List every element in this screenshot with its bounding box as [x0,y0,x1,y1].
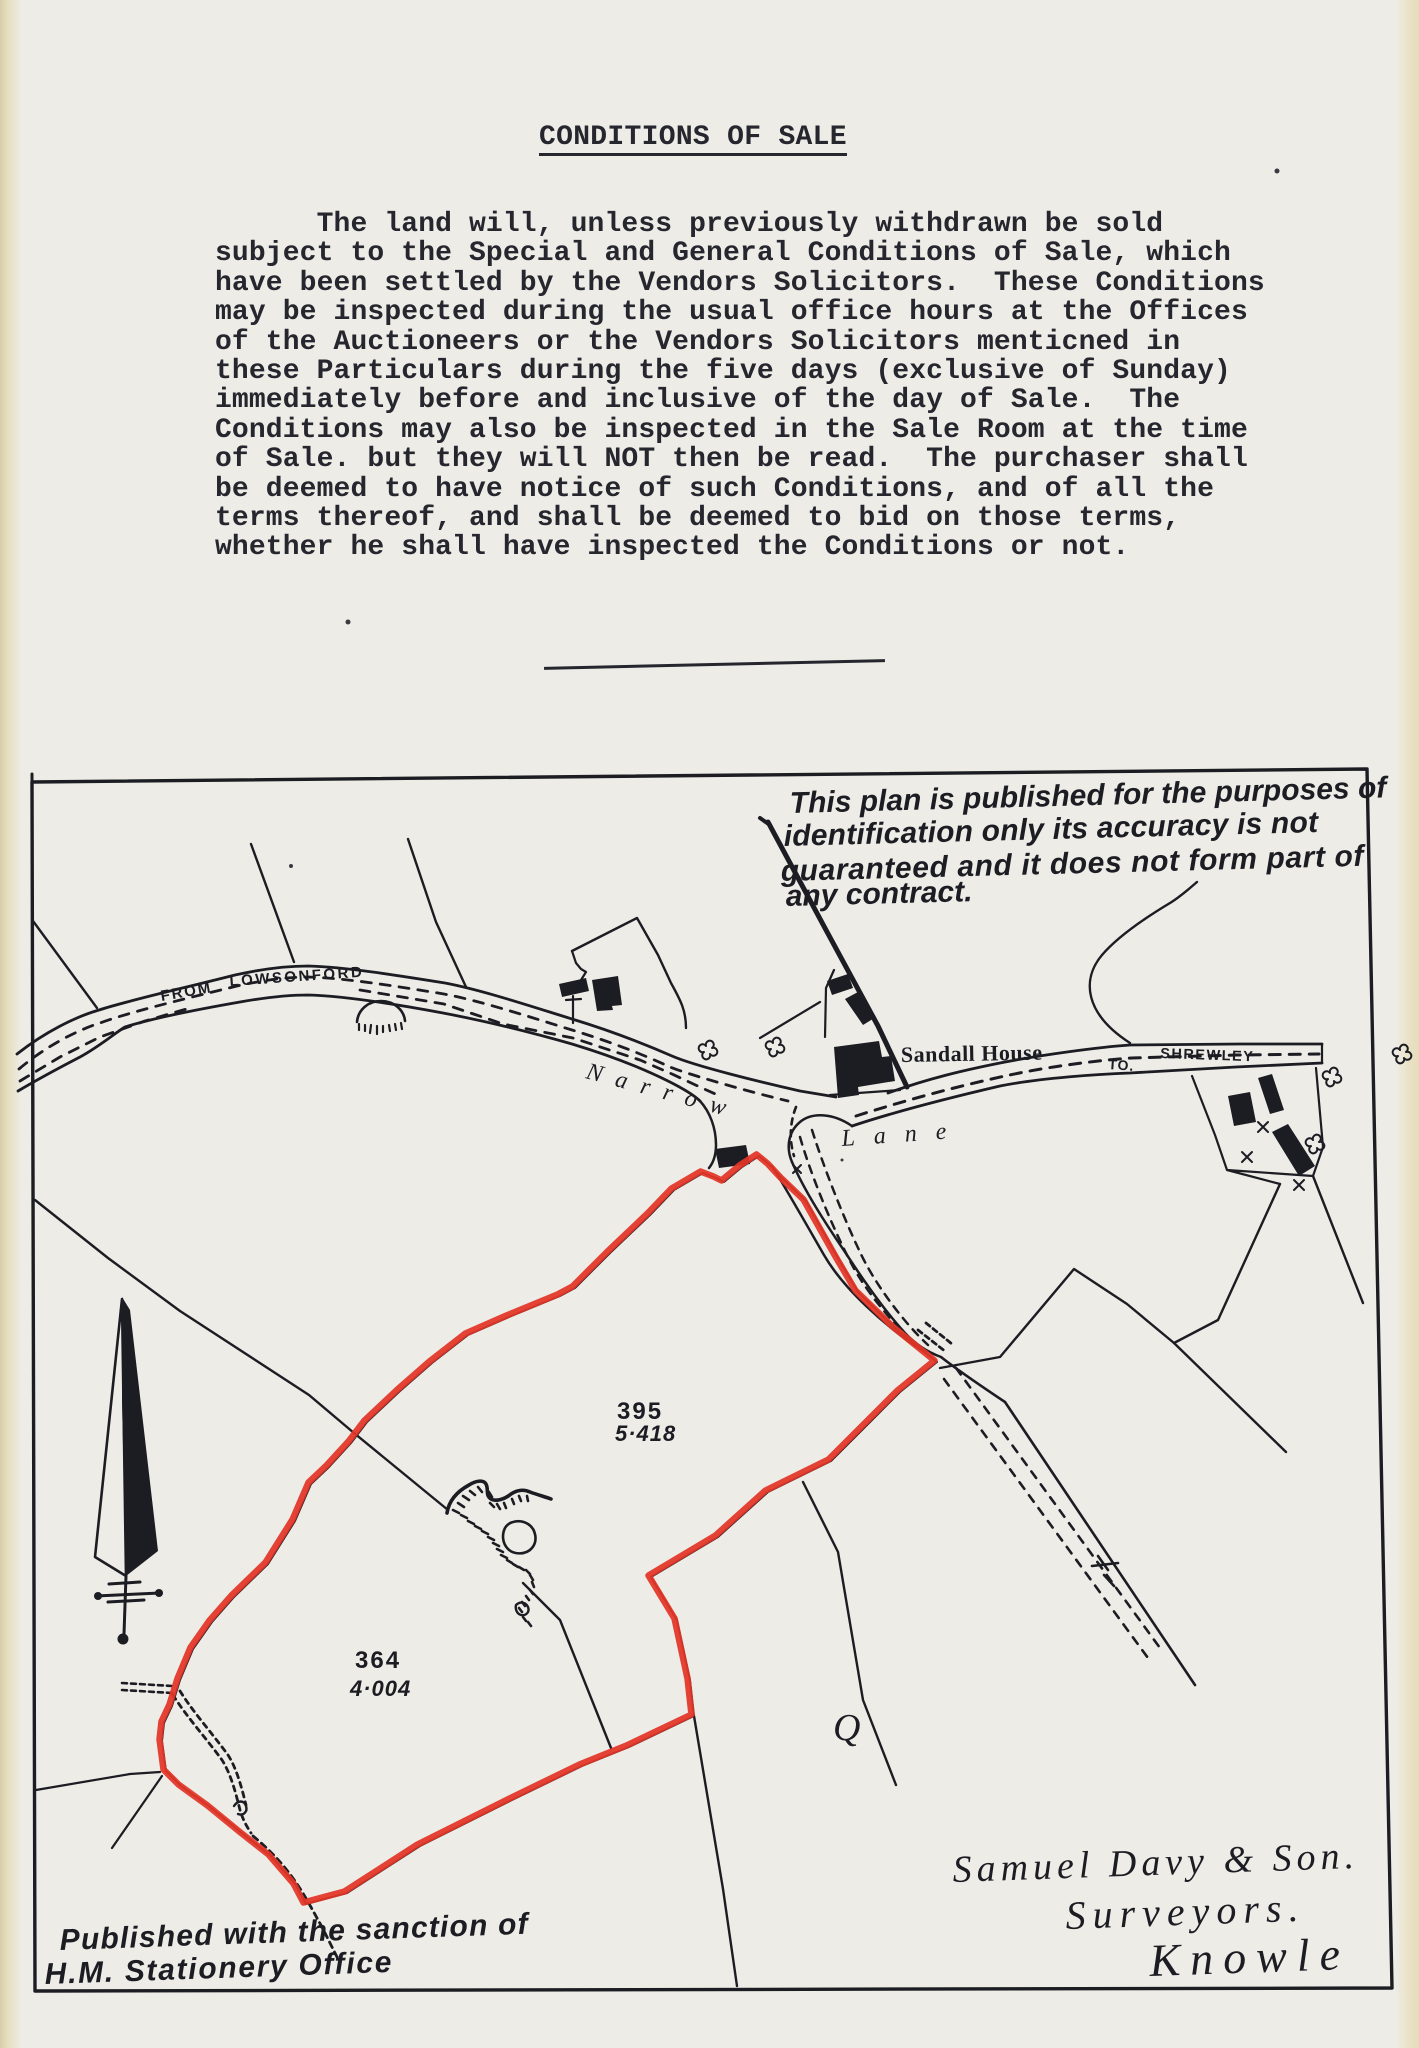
svg-text:Samuel Davy & Son.: Samuel Davy & Son. [952,1835,1360,1891]
svg-text:4·004: 4·004 [349,1676,411,1701]
svg-text:LOWSONFORD: LOWSONFORD [229,964,365,990]
svg-text:Sandall House: Sandall House [901,1040,1043,1067]
svg-text:any contract.: any contract. [785,875,973,913]
svg-text:SHREWLEY: SHREWLEY [1160,1046,1255,1065]
svg-text:364: 364 [355,1647,401,1674]
svg-text:TO.: TO. [1108,1056,1135,1074]
svg-text:FROM: FROM [159,979,213,1005]
svg-text:Knowle: Knowle [1148,1928,1351,1986]
svg-text:5·418: 5·418 [615,1421,676,1446]
svg-text:Q: Q [833,1707,860,1749]
